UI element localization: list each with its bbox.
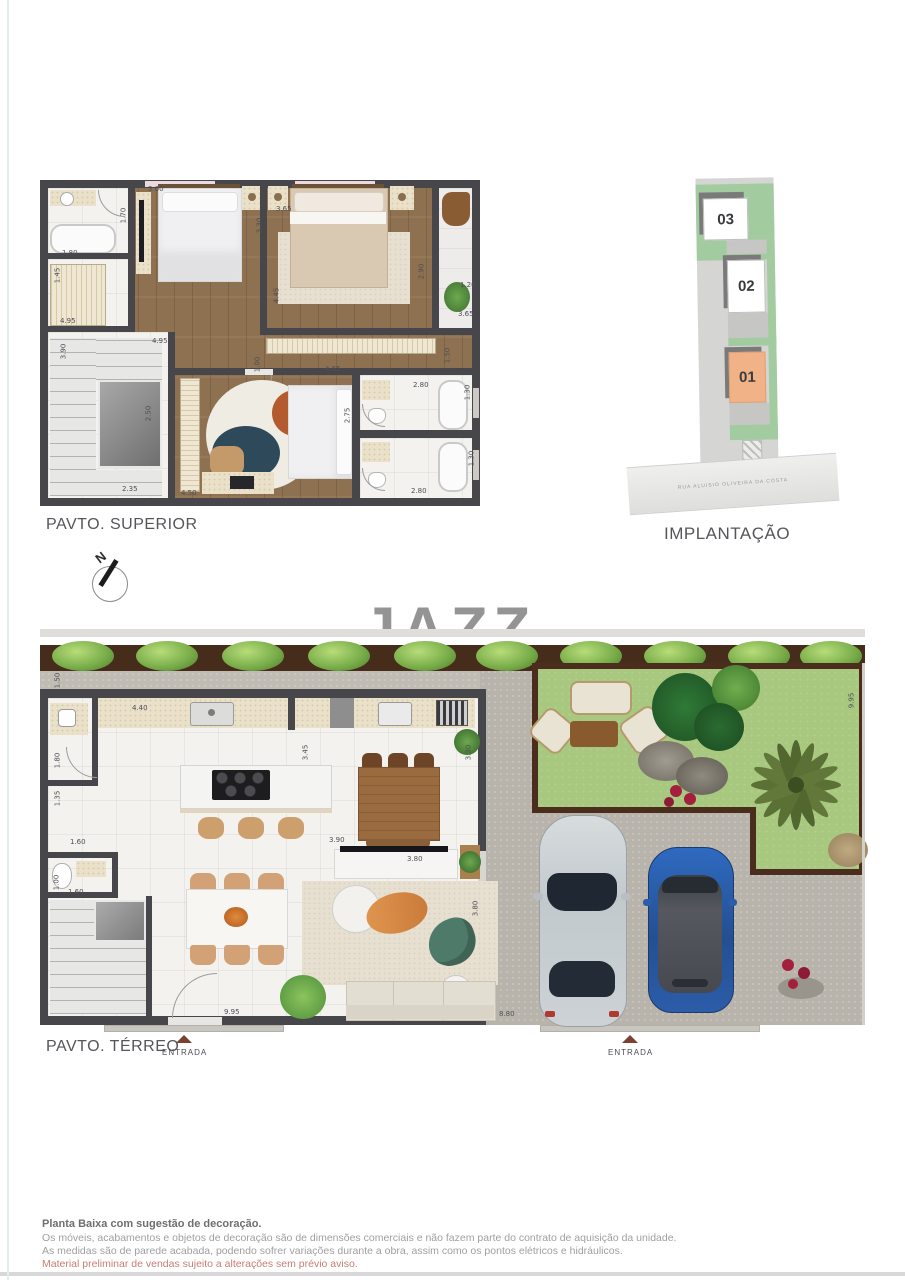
north-label: N <box>92 549 109 567</box>
dimension-label: 1.50 <box>444 348 451 364</box>
windshield <box>662 877 718 893</box>
dimension-label: 3.80 <box>407 856 423 863</box>
disclaimer-line: As medidas são de parede acabada, podend… <box>42 1245 623 1257</box>
rear-window <box>549 961 615 997</box>
tv-console <box>334 849 458 879</box>
wc-vanity <box>76 861 106 877</box>
mirror <box>621 893 631 900</box>
unit-03-label: 03 <box>717 211 734 228</box>
dimension-label: 1.20 <box>460 282 476 289</box>
green-area <box>728 337 776 346</box>
tv <box>340 846 448 852</box>
dimension-label: 3.30 <box>465 745 472 761</box>
disclaimer-warning: Material preliminar de vendas sujeito a … <box>42 1258 358 1270</box>
mirror <box>643 899 652 906</box>
patio <box>727 239 767 254</box>
site-plan: 03 02 01 RUA ALUISIO OLIVEIRA DA COSTA <box>640 165 815 525</box>
sink <box>58 709 76 727</box>
entry-step <box>104 1025 284 1032</box>
dining-table-wood <box>358 767 440 841</box>
entrance-label: ENTRADA <box>162 1048 207 1057</box>
lamp <box>248 193 256 201</box>
mirror <box>728 899 737 906</box>
rock <box>778 977 824 999</box>
north-compass: N <box>84 550 140 606</box>
shrub <box>136 641 198 671</box>
lot: 03 02 01 <box>695 177 778 470</box>
entrance-arrow-icon <box>622 1035 638 1043</box>
dimension-label: 3.65 <box>276 206 292 213</box>
dimension-label: 1.00 <box>254 357 261 373</box>
brochure-page: { "watermark": "JAZZ", "superior": { "ti… <box>0 0 905 1280</box>
cooktop <box>212 770 270 800</box>
dimension-label: 3.65 <box>458 311 474 318</box>
wall <box>175 368 472 375</box>
upper-floor-plan: 3.003.651.701.803.301.452.901.204.953.65… <box>40 180 480 506</box>
wall <box>48 852 118 858</box>
sink <box>60 192 74 206</box>
lot-edge <box>862 663 865 1025</box>
plant <box>459 851 481 873</box>
wall <box>40 180 48 506</box>
stairs <box>50 900 94 1014</box>
wall <box>40 498 480 506</box>
sofa-back <box>346 1005 494 1019</box>
entrance-arrow-icon <box>176 1035 192 1043</box>
wardrobe <box>266 338 436 354</box>
stair-void <box>98 380 162 468</box>
wall <box>40 689 48 1025</box>
centerpiece <box>224 907 248 927</box>
flowers <box>684 793 696 805</box>
chair <box>190 945 216 965</box>
site-plan-title: IMPLANTAÇÃO <box>664 524 790 544</box>
dimension-label: 1.50 <box>54 673 61 689</box>
tv <box>139 200 144 262</box>
flowers <box>788 979 798 989</box>
shrub <box>394 641 456 671</box>
shrub <box>476 641 538 671</box>
bed-sheet <box>290 212 386 224</box>
shrub <box>308 641 370 671</box>
dimension-label: 8.80 <box>499 1011 515 1018</box>
stool <box>238 817 264 839</box>
dimension-label: 4.95 <box>60 318 76 325</box>
dimension-label: 3.45 <box>302 745 309 761</box>
bathtub <box>50 224 116 254</box>
unit-02: 02 <box>727 260 766 314</box>
shrub <box>52 641 114 671</box>
stair-landing <box>94 900 146 942</box>
chair <box>258 945 284 965</box>
wall <box>168 332 175 498</box>
car-blue <box>646 847 734 1011</box>
armchair <box>442 192 470 226</box>
outdoor-sofa <box>570 681 632 715</box>
pillows <box>162 192 238 212</box>
street: RUA ALUISIO OLIVEIRA DA COSTA <box>627 453 840 516</box>
green-area <box>730 424 778 440</box>
unit-01-label: 01 <box>739 369 756 386</box>
flowers <box>664 797 674 807</box>
pillows <box>336 389 352 475</box>
ground-floor-plan: 1.504.401.801.351.603.453.303.903.803.80… <box>40 637 865 1033</box>
dimension-label: 2.80 <box>411 488 427 495</box>
dimension-label: 4.45 <box>273 288 280 304</box>
dimension-label: 2.90 <box>418 264 425 280</box>
shrub <box>222 641 284 671</box>
dimension-label: 1.80 <box>62 250 78 257</box>
dimension-label: 1.80 <box>54 753 61 769</box>
unit-02-label: 02 <box>738 278 755 295</box>
pillows <box>294 192 384 212</box>
flowers <box>670 785 682 797</box>
wall <box>260 180 267 328</box>
stairs <box>94 942 146 1014</box>
dimension-label: 3.80 <box>472 901 479 917</box>
dimension-label: 4.50 <box>181 490 197 497</box>
mirror <box>533 893 543 900</box>
faucet <box>208 709 215 716</box>
rear-window <box>672 979 708 987</box>
dimension-label: 3.30 <box>256 218 263 234</box>
patio <box>728 312 768 338</box>
dimension-label: 9.95 <box>224 1009 240 1016</box>
dimension-label: 2.75 <box>344 408 351 424</box>
vent-grille <box>436 700 468 726</box>
upper-floor-title: PAVTO. SUPERIOR <box>46 516 198 534</box>
dimension-label: 2.35 <box>122 486 138 493</box>
wardrobe <box>180 378 200 492</box>
disclaimer-line: Os móveis, acabamentos e objetos de deco… <box>42 1232 676 1244</box>
dimension-label: 1.00 <box>53 875 60 891</box>
chair <box>224 945 250 965</box>
left-edge-line <box>7 0 9 1280</box>
stool <box>278 817 304 839</box>
taillight <box>609 1011 619 1017</box>
entrance-label-2: ENTRADA <box>608 1048 653 1057</box>
wall <box>432 180 439 328</box>
dimension-label: 9.95 <box>848 693 855 709</box>
dimension-label: 4.40 <box>132 705 148 712</box>
dimension-label: 2.80 <box>413 382 429 389</box>
street-name: RUA ALUISIO OLIVEIRA DA COSTA <box>678 477 789 491</box>
plant <box>280 975 326 1019</box>
dimension-label: 1.35 <box>54 791 61 807</box>
stool <box>198 817 224 839</box>
ground-floor-title: PAVTO. TÉRREO <box>46 1038 179 1056</box>
flowers <box>782 959 794 971</box>
patio <box>729 402 769 425</box>
wall <box>352 430 472 438</box>
dimension-label: 1.30 <box>464 385 471 401</box>
dimension-label: 3.00 <box>148 186 164 193</box>
taillight <box>545 1011 555 1017</box>
lamp <box>398 193 406 201</box>
outdoor-table <box>570 721 618 747</box>
sink <box>378 702 412 726</box>
stairs <box>50 338 96 496</box>
lamp <box>274 193 282 201</box>
unit-01: 01 <box>728 352 766 404</box>
dimension-label: 1.60 <box>70 839 86 846</box>
wall <box>48 780 96 786</box>
disclaimer-title: Planta Baixa com sugestão de decoração. <box>42 1218 261 1230</box>
car-silver <box>535 815 629 1025</box>
dimension-label: 2.50 <box>145 406 152 422</box>
entry-door-opening <box>168 1017 222 1025</box>
wall <box>288 698 295 730</box>
dimension-label: 1.70 <box>120 208 127 224</box>
dimension-label: 3.90 <box>329 837 345 844</box>
laptop <box>230 476 254 489</box>
bottom-rule <box>0 1272 905 1276</box>
dimension-label: 3.90 <box>60 344 67 360</box>
wall <box>40 689 486 698</box>
window <box>473 388 479 418</box>
wall <box>146 896 152 1016</box>
dimension-label: 1.60 <box>68 889 84 896</box>
flowers <box>798 967 810 979</box>
windshield <box>547 873 617 911</box>
bathroom-vanity <box>362 380 390 400</box>
dimension-label: 1.30 <box>468 451 475 467</box>
dimension-label: 4.65 <box>325 366 341 373</box>
wall <box>260 328 472 335</box>
unit-03: 03 <box>703 198 749 241</box>
dimension-label: 4.95 <box>152 338 168 345</box>
bathroom-vanity <box>362 442 390 462</box>
dimension-label: 1.45 <box>54 268 61 284</box>
appliance <box>330 698 354 728</box>
wall <box>128 180 135 330</box>
bathtub <box>438 442 468 492</box>
